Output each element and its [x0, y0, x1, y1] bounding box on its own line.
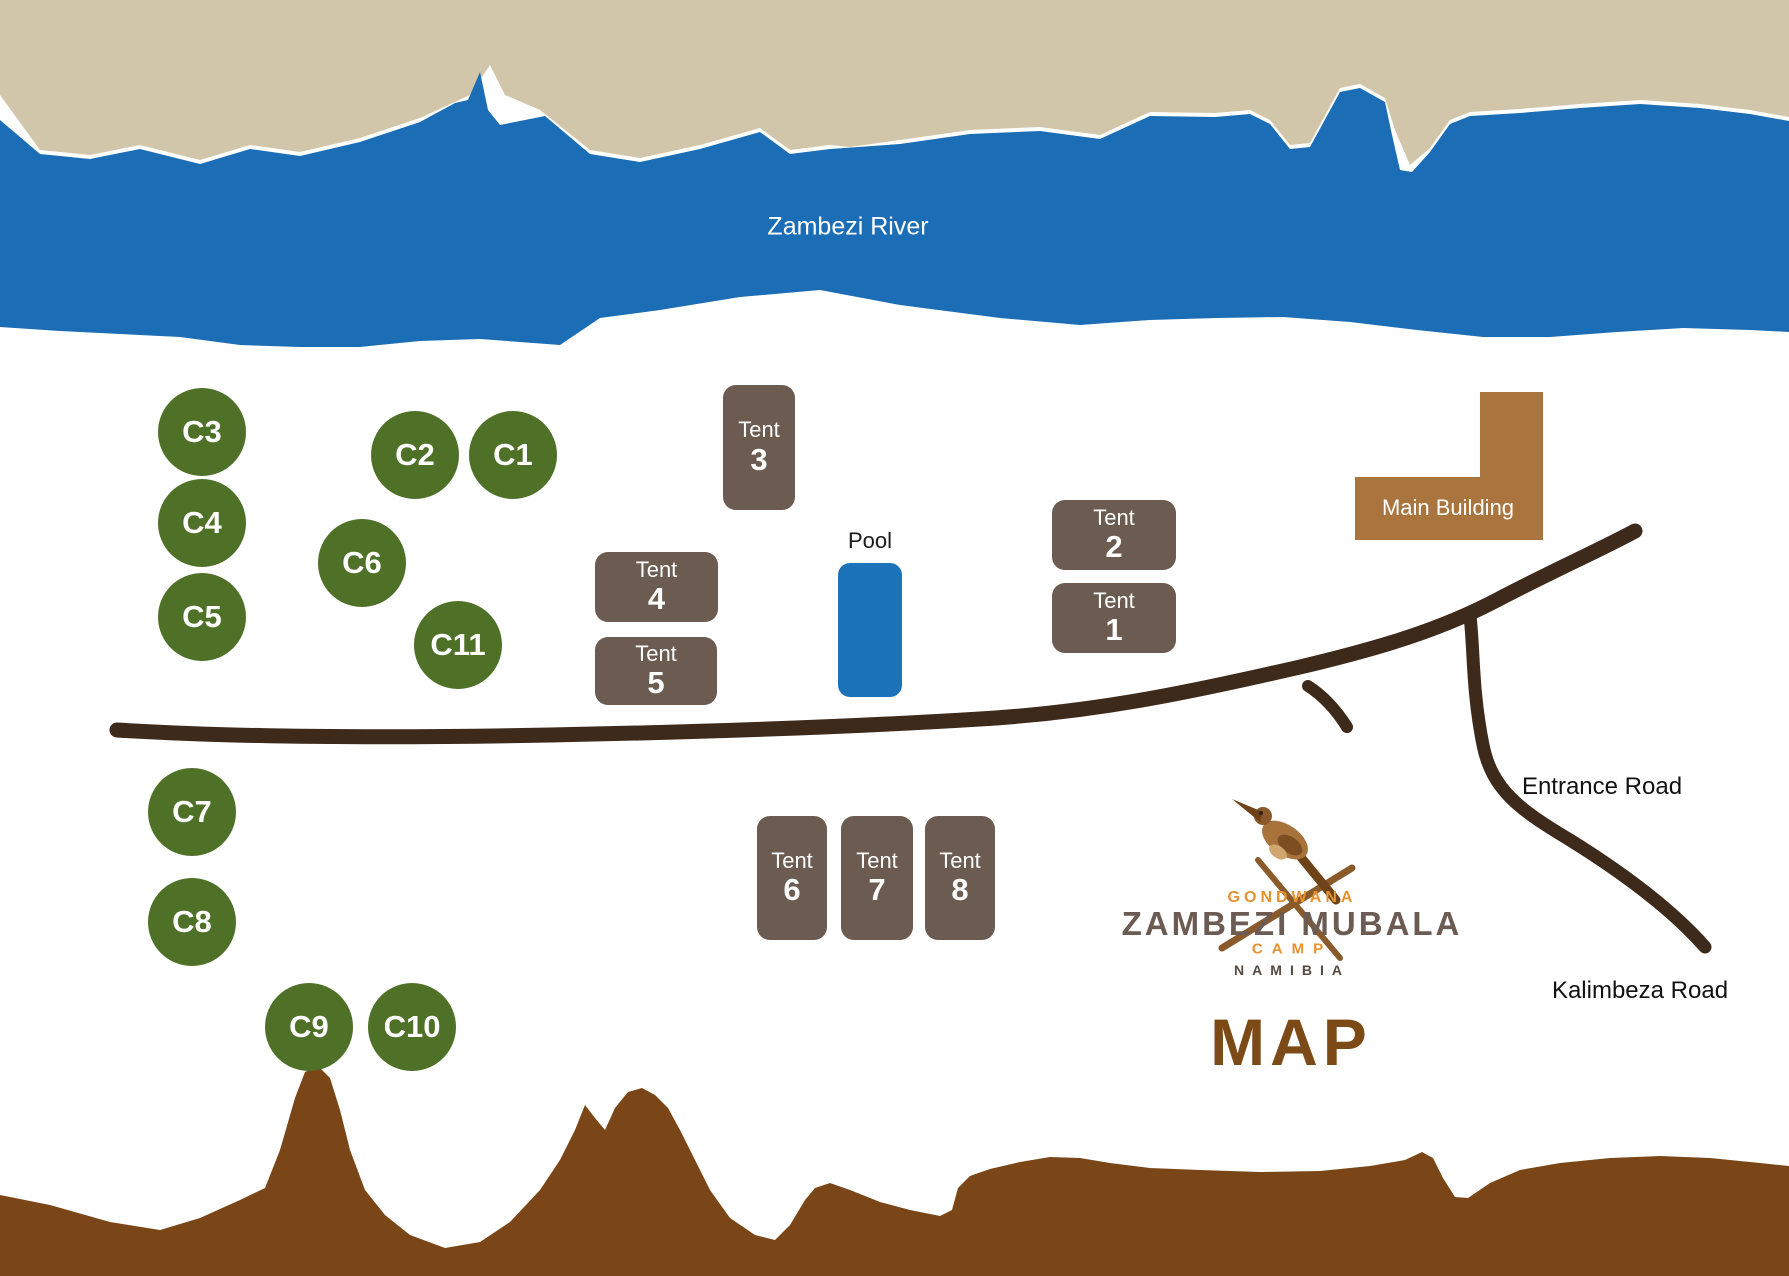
tent-marker-2: Tent 2	[1052, 500, 1176, 570]
pool	[838, 563, 902, 697]
tent-word: Tent	[771, 849, 813, 873]
campsite-marker-c10: C10	[368, 983, 456, 1071]
tent-number: 3	[750, 443, 767, 477]
tent-number: 8	[951, 873, 968, 907]
logo-country: NAMIBIA	[1234, 962, 1350, 978]
main-building-label: Main Building	[1382, 495, 1514, 521]
tent-word: Tent	[1093, 506, 1135, 530]
map-title: MAP	[1210, 1004, 1372, 1080]
tent-number: 4	[648, 582, 665, 616]
tent-number: 5	[647, 666, 664, 700]
tent-marker-1: Tent 1	[1052, 583, 1176, 653]
road-spur	[1308, 686, 1347, 727]
tent-marker-8: Tent 8	[925, 816, 995, 940]
tent-number: 6	[783, 873, 800, 907]
tent-word: Tent	[939, 849, 981, 873]
campsite-marker-c4: C4	[158, 479, 246, 567]
campsite-marker-c11: C11	[414, 601, 502, 689]
river-label: Zambezi River	[767, 213, 928, 242]
logo-camp-word: CAMP	[1252, 941, 1332, 958]
campsite-marker-c5: C5	[158, 573, 246, 661]
tent-word: Tent	[738, 418, 780, 442]
campsite-marker-c8: C8	[148, 878, 236, 966]
tent-marker-5: Tent 5	[595, 637, 717, 705]
tent-marker-4: Tent 4	[595, 552, 718, 622]
tent-word: Tent	[635, 642, 677, 666]
campsite-marker-c9: C9	[265, 983, 353, 1071]
entrance-road-label: Entrance Road	[1522, 773, 1682, 801]
tent-word: Tent	[1093, 589, 1135, 613]
tent-number: 2	[1105, 530, 1122, 564]
tent-marker-7: Tent 7	[841, 816, 913, 940]
camp-map: Zambezi River Pool Main Building Entranc…	[0, 0, 1789, 1276]
campsite-marker-c6: C6	[318, 519, 406, 607]
tent-number: 1	[1105, 613, 1122, 647]
tent-marker-3: Tent 3	[723, 385, 795, 510]
logo-camp-name: ZAMBEZI MUBALA	[1122, 905, 1463, 943]
pool-label: Pool	[848, 528, 892, 554]
campsite-marker-c1: C1	[469, 411, 557, 499]
tent-word: Tent	[636, 558, 678, 582]
tent-marker-6: Tent 6	[757, 816, 827, 940]
campsite-marker-c7: C7	[148, 768, 236, 856]
tent-number: 7	[868, 873, 885, 907]
tent-word: Tent	[856, 849, 898, 873]
campsite-marker-c3: C3	[158, 388, 246, 476]
kalimbeza-road-label: Kalimbeza Road	[1552, 977, 1728, 1005]
near-terrain	[0, 1066, 1789, 1276]
campsite-marker-c2: C2	[371, 411, 459, 499]
